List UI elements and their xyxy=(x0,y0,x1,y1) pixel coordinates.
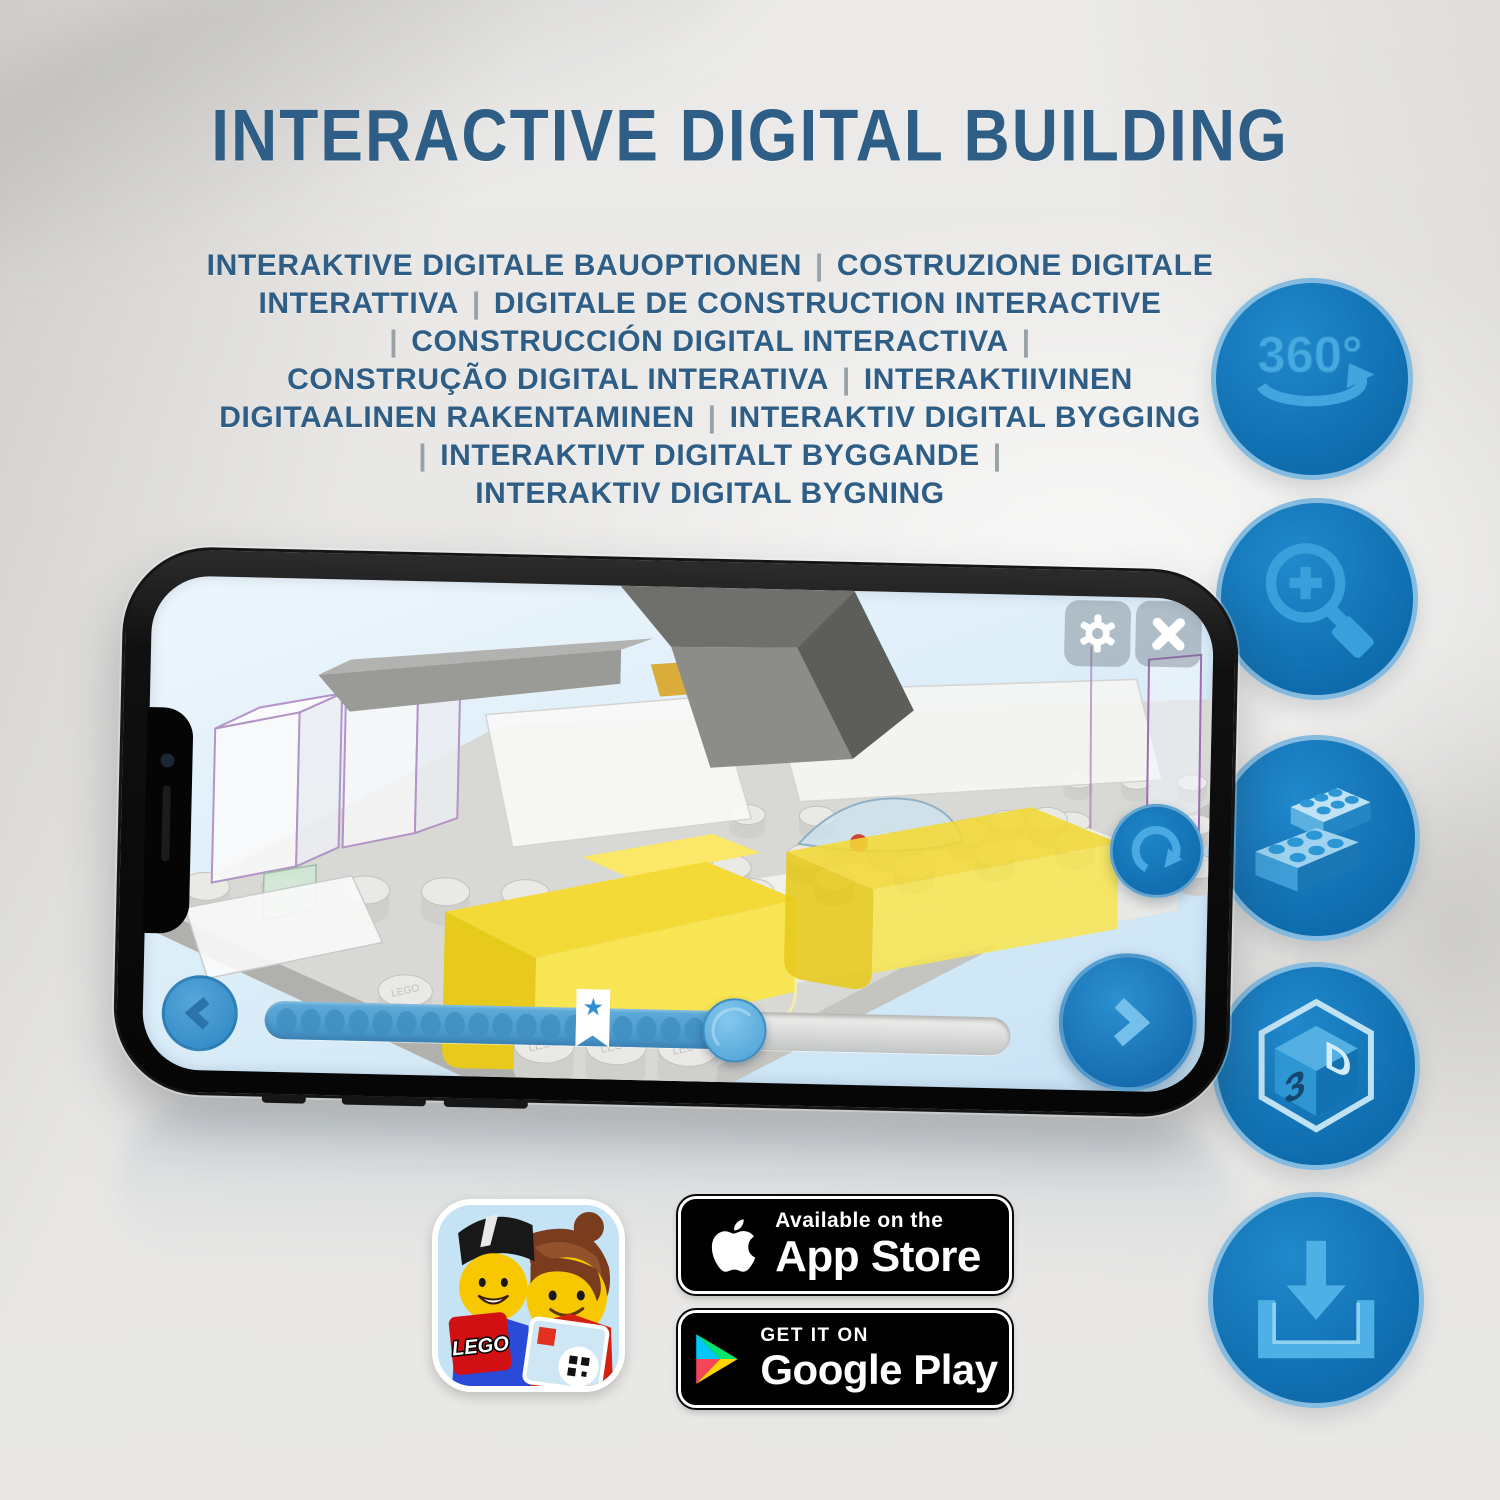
chevron-left-icon xyxy=(177,991,222,1036)
camera-notch xyxy=(143,707,194,934)
zoom-in-badge xyxy=(1216,498,1418,700)
speaker-grille xyxy=(161,785,171,861)
settings-button[interactable] xyxy=(1064,600,1131,667)
step-dot xyxy=(540,1013,561,1038)
settings-gear-icon xyxy=(1077,613,1118,654)
subtitle: INTERAKTIVE DIGITALE BAUOPTIONEN | COSTR… xyxy=(145,247,1275,513)
google-play-triangle-icon xyxy=(692,1332,742,1386)
apple-icon xyxy=(709,1217,757,1273)
subtitle-line: CONSTRUÇÃO DIGITAL INTERATIVA | INTERAKT… xyxy=(145,361,1275,399)
download-badge xyxy=(1208,1192,1424,1408)
3d-cube-icon: 3 D xyxy=(1245,995,1388,1138)
phone-reflection xyxy=(116,1103,1235,1278)
chevron-right-icon xyxy=(1100,995,1155,1050)
google-play-tagline: GET IT ON xyxy=(760,1326,997,1346)
step-dot xyxy=(300,1008,321,1033)
close-icon xyxy=(1149,615,1188,654)
zoom-in-magnifier-icon xyxy=(1248,530,1386,668)
subtitle-line: DIGITAALINEN RAKENTAMINEN | INTERAKTIV D… xyxy=(145,399,1275,437)
app-store-name: App Store xyxy=(775,1234,981,1280)
subtitle-line: INTERATTIVA | DIGITALE DE CONSTRUCTION I… xyxy=(145,285,1275,323)
lego-app-artwork: LEGO xyxy=(438,1205,619,1386)
subtitle-line: | INTERAKTIVT DIGITALT BYGGANDE | xyxy=(145,437,1275,475)
step-dot xyxy=(468,1012,489,1037)
rotate-cw-icon xyxy=(1125,819,1188,882)
step-dot xyxy=(396,1010,417,1035)
3d-view-badge: 3 D xyxy=(1212,962,1420,1170)
google-play-badge[interactable]: GET IT ON Google Play xyxy=(678,1310,1012,1408)
step-dot xyxy=(492,1012,513,1037)
step-dot xyxy=(372,1010,393,1035)
step-dot xyxy=(516,1013,537,1038)
step-dot xyxy=(612,1015,633,1040)
lego-app-icon[interactable]: LEGO xyxy=(432,1199,625,1392)
antenna-line xyxy=(262,1094,306,1104)
step-dot xyxy=(276,1007,297,1032)
lego-bricks-icon xyxy=(1246,767,1387,908)
page-title: INTERACTIVE DIGITAL BUILDING xyxy=(0,92,1500,177)
subtitle-line: INTERAKTIVE DIGITALE BAUOPTIONEN | COSTR… xyxy=(145,247,1275,285)
download-icon xyxy=(1242,1226,1390,1374)
front-camera xyxy=(160,753,174,767)
close-button[interactable] xyxy=(1135,600,1202,667)
step-dot xyxy=(444,1011,465,1036)
speaker-slit xyxy=(444,1098,528,1109)
step-dot xyxy=(348,1009,369,1034)
app-screen: LEGOLEGOLEGOLEGO xyxy=(141,575,1214,1093)
app-store-badge[interactable]: Available on the App Store xyxy=(678,1196,1012,1294)
smartphone: LEGOLEGOLEGOLEGO xyxy=(112,545,1240,1118)
bricks-badge xyxy=(1214,735,1420,941)
app-store-tagline: Available on the xyxy=(775,1210,981,1232)
speaker-slit xyxy=(342,1095,426,1106)
subtitle-line: INTERAKTIV DIGITAL BYGNING xyxy=(145,475,1275,513)
step-dot xyxy=(420,1011,441,1036)
step-dot xyxy=(636,1016,657,1041)
subtitle-line: | CONSTRUCCIÓN DIGITAL INTERACTIVA | xyxy=(145,323,1275,361)
google-play-name: Google Play xyxy=(760,1348,997,1392)
step-dot xyxy=(324,1009,345,1034)
step-dot xyxy=(660,1016,681,1041)
